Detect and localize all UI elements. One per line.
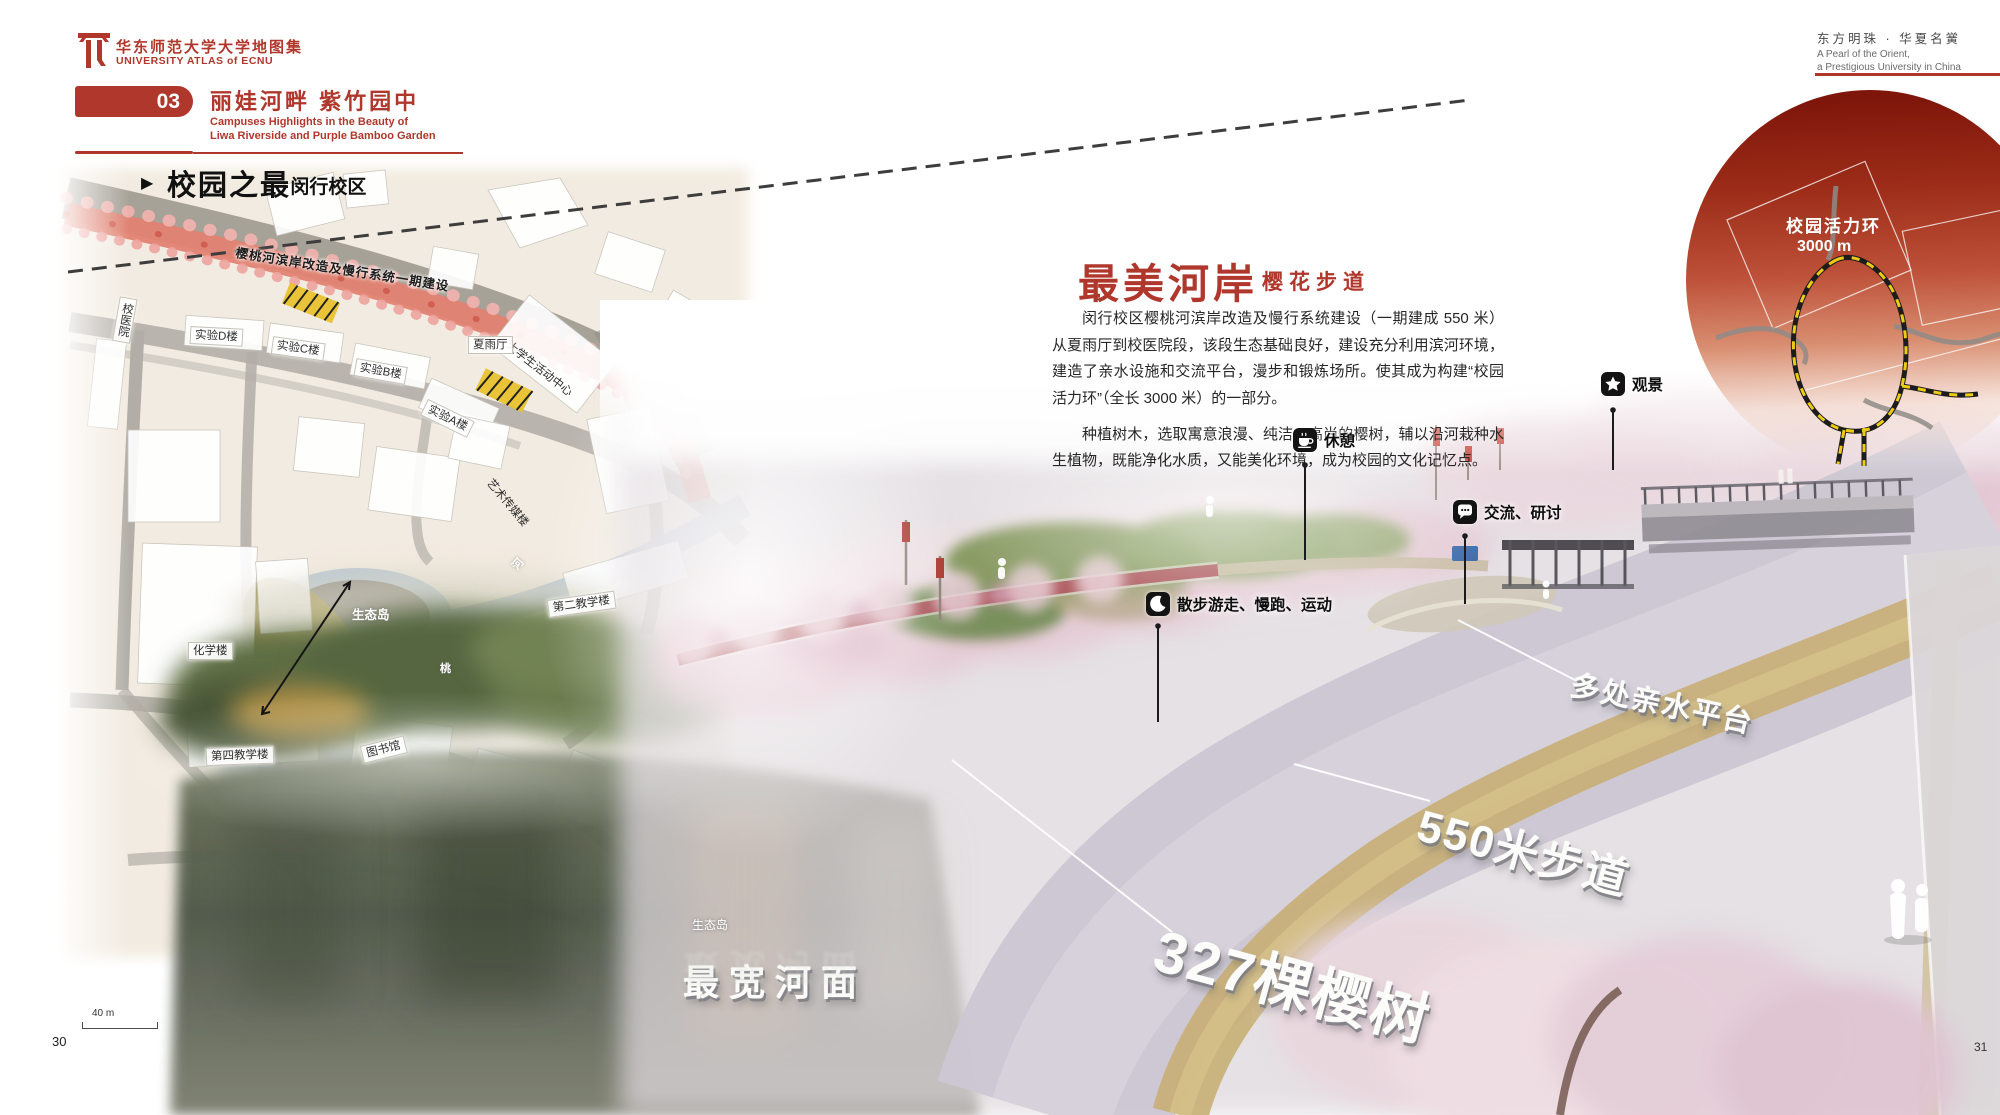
section-marker-icon: ▶ xyxy=(141,173,153,193)
motto-en-line1: A Pearl of the Orient, xyxy=(1817,48,1961,61)
article-paragraph-1: 闵行校区樱桃河滨岸改造及慢行系统建设（一期建成 550 米）从夏雨厅到校医院段，… xyxy=(1052,306,1504,413)
eco-island-photo-label: 生态岛 xyxy=(692,916,728,933)
atlas-title: 华东师范大学大学地图集 xyxy=(116,36,303,57)
article-paragraph-2: 种植树木，选取寓意浪漫、纯洁、高尚的樱树，辅以沿河栽种水生植物，既能净化水质，又… xyxy=(1052,422,1504,475)
inset-length: 3000 m xyxy=(1797,238,1851,256)
map-label-teaching4: 第四教学楼 xyxy=(206,746,274,767)
section-subtitle: ·闵行校区 xyxy=(284,172,366,199)
chapter-en-line2: Liwa Riverside and Purple Bamboo Garden xyxy=(210,130,436,144)
callout-viewing-label: 观景 xyxy=(1632,373,1663,395)
scale-label: 40 m xyxy=(92,1008,114,1019)
callout-discussion-label: 交流、研讨 xyxy=(1484,501,1562,523)
motto-en: A Pearl of the Orient, a Prestigious Uni… xyxy=(1817,48,1961,74)
callout-discussion: 交流、研讨 xyxy=(1453,500,1562,524)
article-title-dot: · xyxy=(1244,268,1251,291)
map-span-arrow xyxy=(262,582,350,714)
header-rule-thin xyxy=(193,152,463,154)
scale-bar xyxy=(82,1022,158,1029)
map-label-lab-d: 实验D楼 xyxy=(190,326,244,347)
atlas-subtitle-en: UNIVERSITY ATLAS of ECNU xyxy=(116,55,273,67)
leader-lines xyxy=(0,0,2000,1115)
section-title: 校园之最 xyxy=(167,162,291,204)
header-rule-thick xyxy=(75,151,193,154)
header-rule-right xyxy=(1815,73,2000,76)
annotation-leader-lines xyxy=(952,620,1577,932)
article-subtitle: 樱花步道 xyxy=(1262,266,1370,296)
star-icon xyxy=(1601,372,1625,396)
article-body: 闵行校区樱桃河滨岸改造及慢行系统建设（一期建成 550 米）从夏雨厅到校医院段，… xyxy=(1052,306,1504,484)
teacup-icon xyxy=(1293,428,1317,452)
map-label-eco-island: 生态岛 xyxy=(352,604,390,623)
chapter-number-badge: 03 xyxy=(75,86,193,117)
callout-rest: 休憩 xyxy=(1293,428,1355,452)
atlas-spread: 校园活力环 3000 m 华东师 xyxy=(0,0,2000,1115)
page-number-right: 31 xyxy=(1974,1040,1987,1054)
chapter-title: 丽娃河畔 紫竹园中 xyxy=(210,84,419,116)
map-label-chemistry: 化学楼 xyxy=(188,642,233,660)
map-label-tao-char: 桃 xyxy=(440,660,451,676)
chapter-title-en: Campuses Highlights in the Beauty of Liw… xyxy=(210,116,436,144)
inset-title: 校园活力环 xyxy=(1786,212,1881,237)
page-number-left: 30 xyxy=(52,1034,66,1049)
callout-rest-label: 休憩 xyxy=(1324,429,1355,451)
callout-walking: 散步游走、慢跑、运动 xyxy=(1146,592,1332,616)
ecnu-logo xyxy=(76,30,112,72)
map-label-xiayu-hall: 夏雨厅 xyxy=(468,336,513,354)
callout-walking-label: 散步游走、慢跑、运动 xyxy=(1177,593,1332,615)
walking-icon xyxy=(1146,592,1170,616)
annotation-widest-river-reflection: 最宽河面 xyxy=(683,944,867,996)
article-title: 最美河岸 xyxy=(1078,250,1258,310)
chat-bubble-icon xyxy=(1453,500,1477,524)
callout-viewing: 观景 xyxy=(1601,372,1663,396)
motto-zh: 东方明珠 · 华夏名黉 xyxy=(1817,28,1961,47)
chapter-en-line1: Campuses Highlights in the Beauty of xyxy=(210,116,436,130)
